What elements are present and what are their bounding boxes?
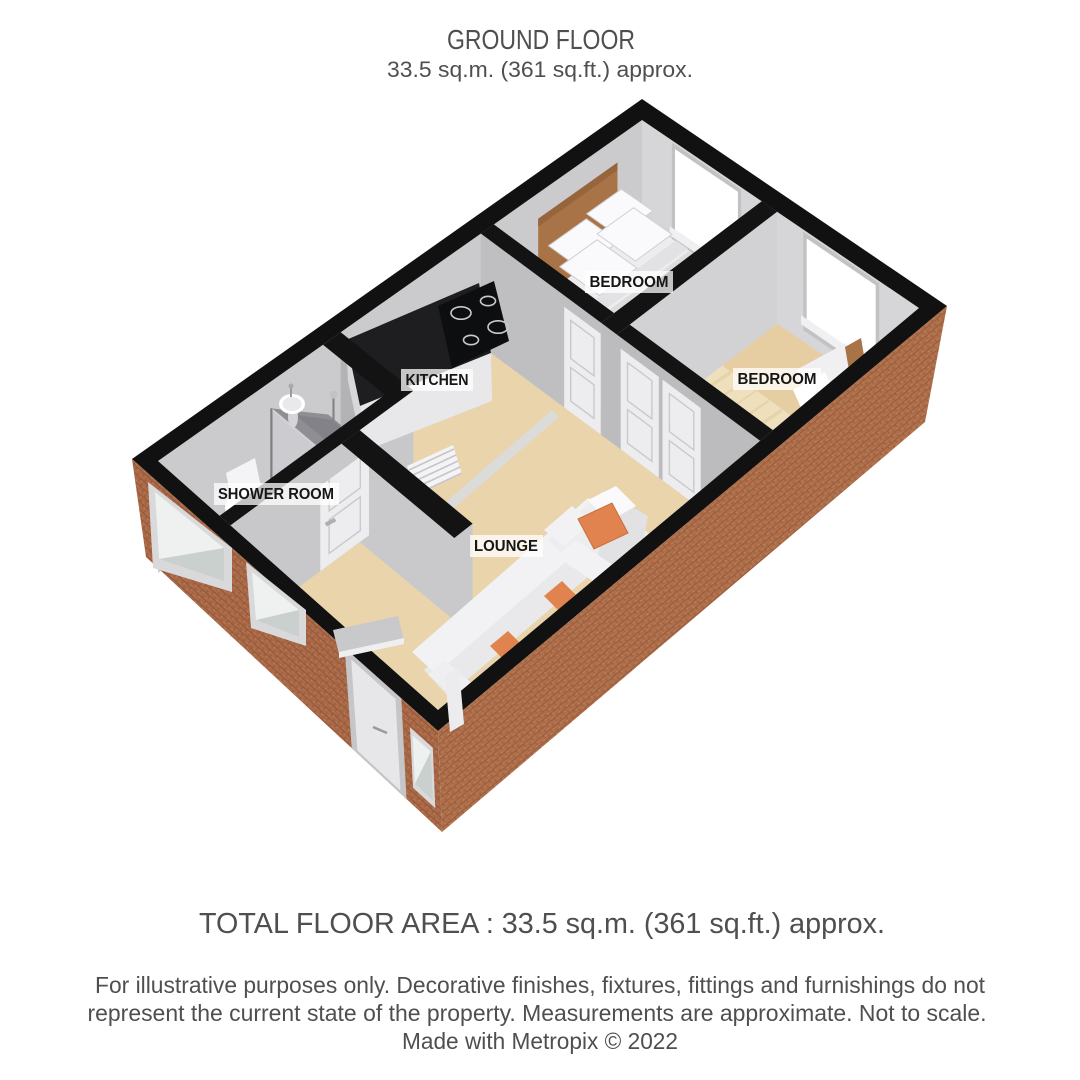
svg-text:SHOWER ROOM: SHOWER ROOM — [218, 486, 334, 503]
svg-text:GROUND FLOOR: GROUND FLOOR — [447, 24, 635, 55]
svg-text:represent the current state of: represent the current state of the prope… — [88, 1000, 987, 1026]
svg-text:BEDROOM: BEDROOM — [738, 371, 817, 388]
svg-text:TOTAL FLOOR AREA : 33.5 sq.m.: TOTAL FLOOR AREA : 33.5 sq.m. (361 sq.ft… — [199, 908, 885, 940]
svg-text:33.5 sq.m. (361 sq.ft.) approx: 33.5 sq.m. (361 sq.ft.) approx. — [387, 57, 693, 82]
svg-text:Made with Metropix © 2022: Made with Metropix © 2022 — [402, 1028, 678, 1054]
svg-text:BEDROOM: BEDROOM — [590, 274, 669, 291]
svg-text:LOUNGE: LOUNGE — [474, 538, 538, 555]
svg-text:For illustrative purposes only: For illustrative purposes only. Decorati… — [95, 972, 986, 998]
svg-text:KITCHEN: KITCHEN — [406, 372, 469, 389]
